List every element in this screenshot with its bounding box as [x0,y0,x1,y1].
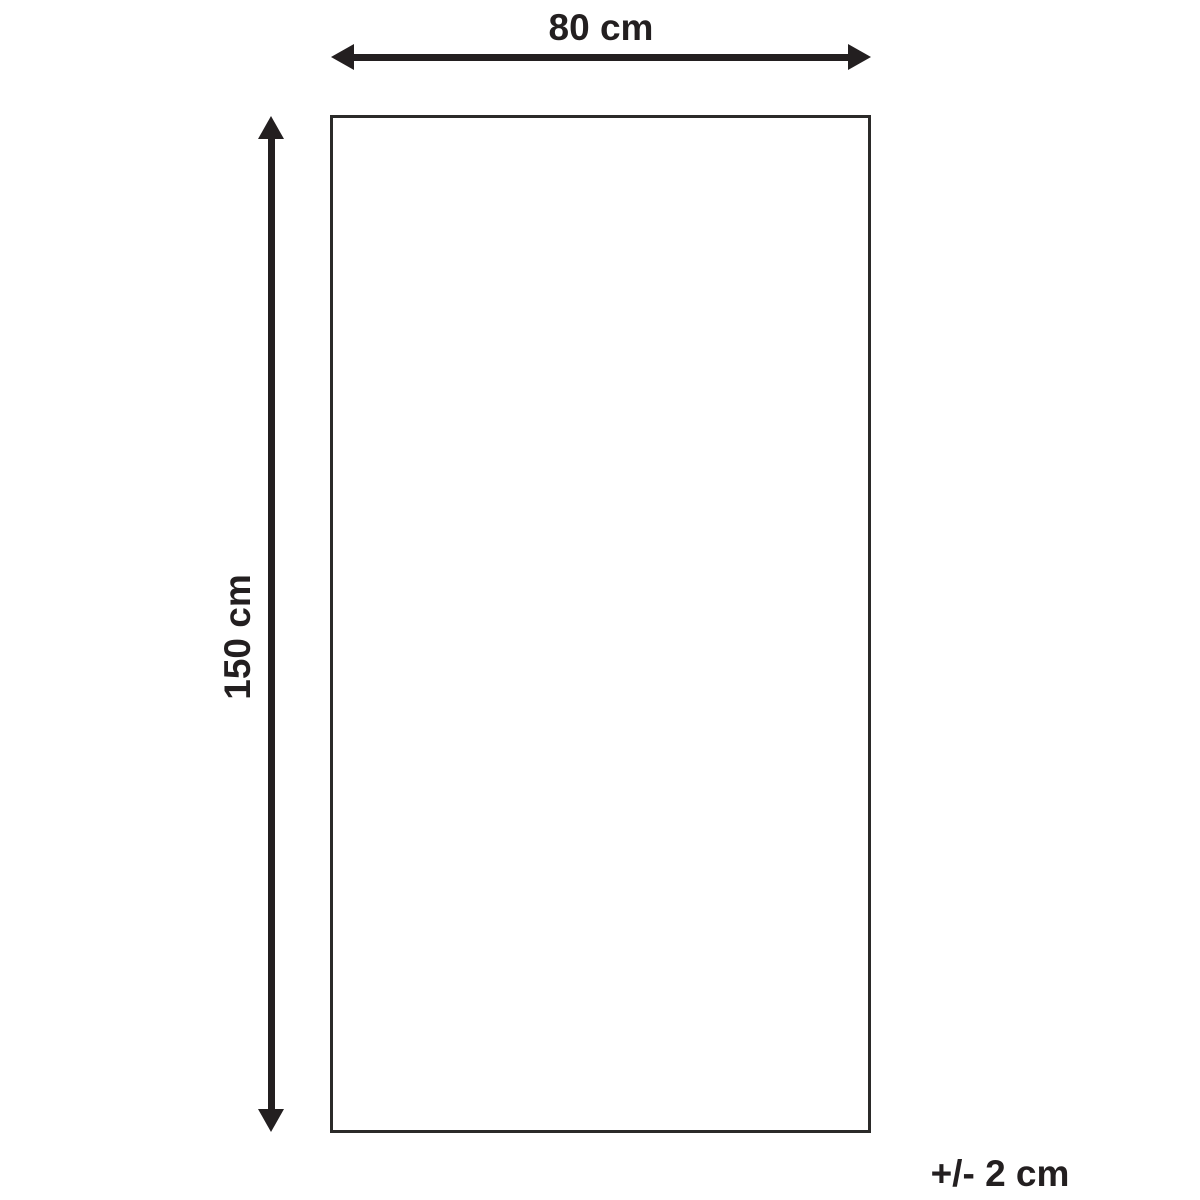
arrow-shaft [347,54,855,61]
arrow-right-icon [848,44,871,70]
arrow-shaft [268,132,275,1116]
tolerance-label: +/- 2 cm [880,1152,1120,1196]
dimension-diagram: 80 cm 150 cm +/- 2 cm [0,0,1200,1200]
product-outline [330,115,871,1133]
height-dimension-arrow [258,116,285,1132]
arrow-down-icon [258,1109,284,1132]
height-dimension-label: 150 cm [216,537,260,737]
width-dimension-arrow [331,44,871,71]
